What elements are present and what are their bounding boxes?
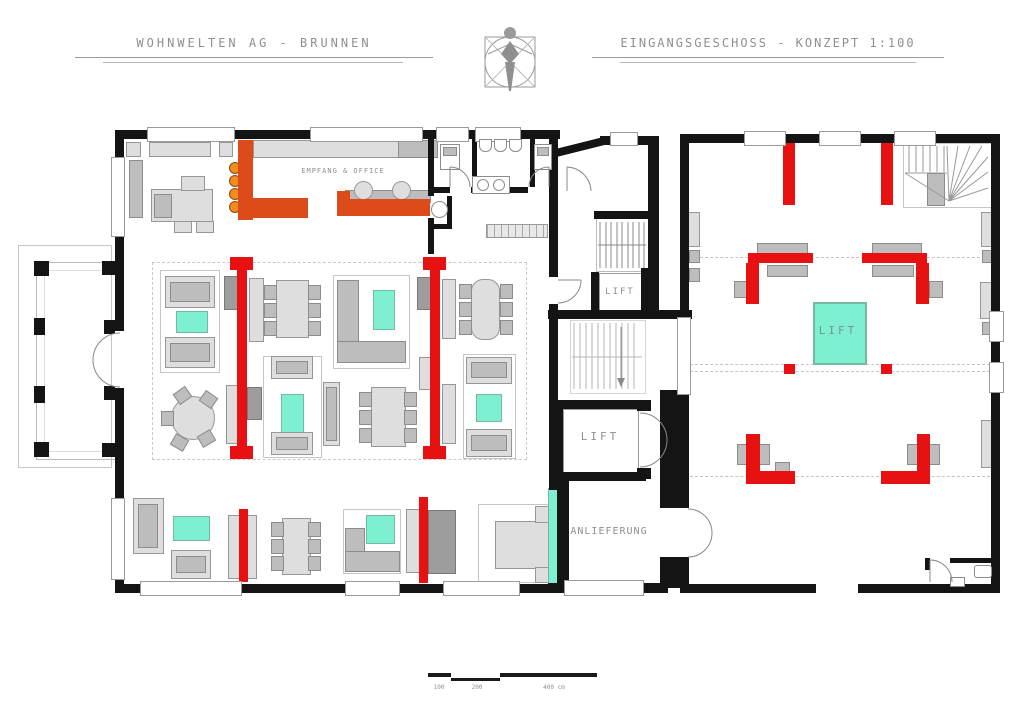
stair-treads bbox=[598, 222, 646, 268]
scale-bar-segment bbox=[500, 673, 597, 677]
door-swings bbox=[93, 167, 952, 582]
scale-label-200: 200 bbox=[463, 684, 491, 691]
stair-treads-light bbox=[572, 323, 642, 389]
scale-label-400: 400 cm bbox=[533, 684, 575, 691]
lift-delivery-label: LIFT bbox=[563, 430, 637, 443]
entrance-diagonal-wall bbox=[556, 141, 604, 153]
scale-label-100: 100 bbox=[425, 684, 453, 691]
plan-linework bbox=[0, 0, 1024, 724]
floor-plan-sheet: WOHNWELTEN AG - BRUNNEN EINGANGSGESCHOSS… bbox=[0, 0, 1024, 724]
delivery-room-label: ANLIEFERUNG bbox=[554, 526, 664, 537]
lift-core-label: LIFT bbox=[599, 287, 641, 297]
lift-showroom-label: LIFT bbox=[813, 324, 863, 337]
scale-bar-segment bbox=[451, 678, 500, 681]
winder-stair-treads bbox=[905, 146, 988, 201]
scale-bar-segment bbox=[428, 673, 451, 677]
reception-label: EMPFANG & OFFICE bbox=[283, 167, 403, 175]
